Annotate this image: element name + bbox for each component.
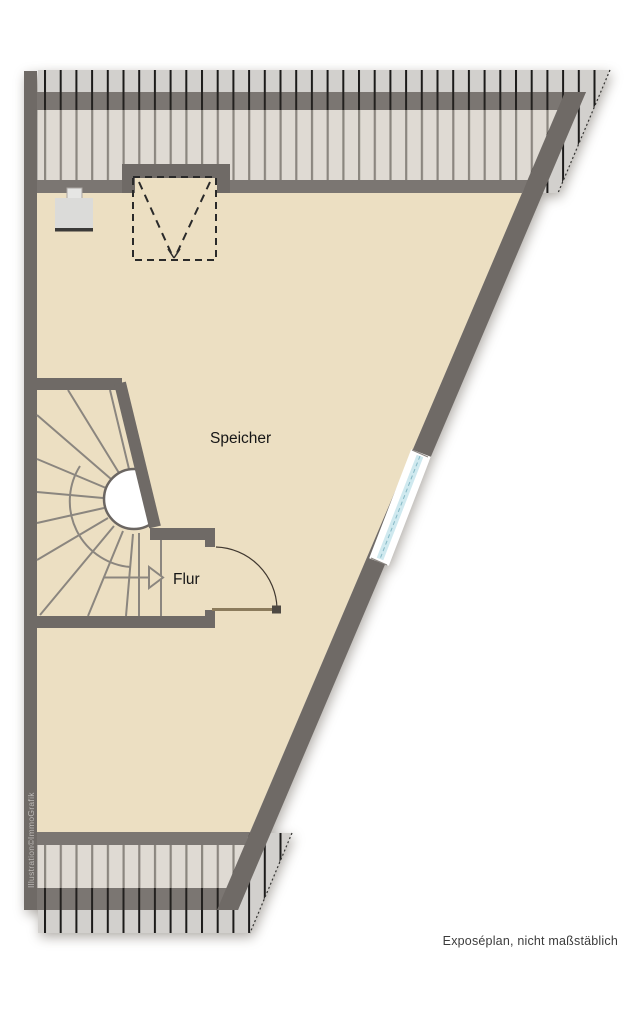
dormer-floor-pocket (135, 178, 217, 193)
dormer (122, 164, 230, 193)
watermark-credit: Illustration©ImmoGrafik (26, 792, 36, 888)
stair-bottom-wall (24, 616, 215, 628)
room-label-speicher: Speicher (210, 430, 271, 447)
left-exterior-wall (24, 71, 37, 910)
door-jamb-bottom (205, 610, 215, 628)
room-label-flur: Flur (173, 571, 200, 588)
bottom-exterior-wall (24, 888, 247, 910)
floorplan-drawing: Speicher Flur Illustration©ImmoGrafik (0, 0, 641, 1023)
bottom-slope-hatch (38, 845, 245, 888)
disclaimer-text: Exposéplan, nicht maßstäblich (443, 934, 618, 948)
stair-top-wall (24, 378, 122, 390)
chimney-body-shadow-edge (55, 228, 93, 232)
top-exterior-wall (24, 92, 586, 110)
top-knee-wall (37, 180, 528, 193)
floorplan-page: Speicher Flur Illustration©ImmoGrafik Ex… (0, 0, 641, 1023)
door-jamb-top (205, 528, 215, 547)
chimney-body (55, 198, 93, 231)
bottom-knee-wall (37, 832, 250, 845)
door-leaf-tip (272, 606, 281, 614)
